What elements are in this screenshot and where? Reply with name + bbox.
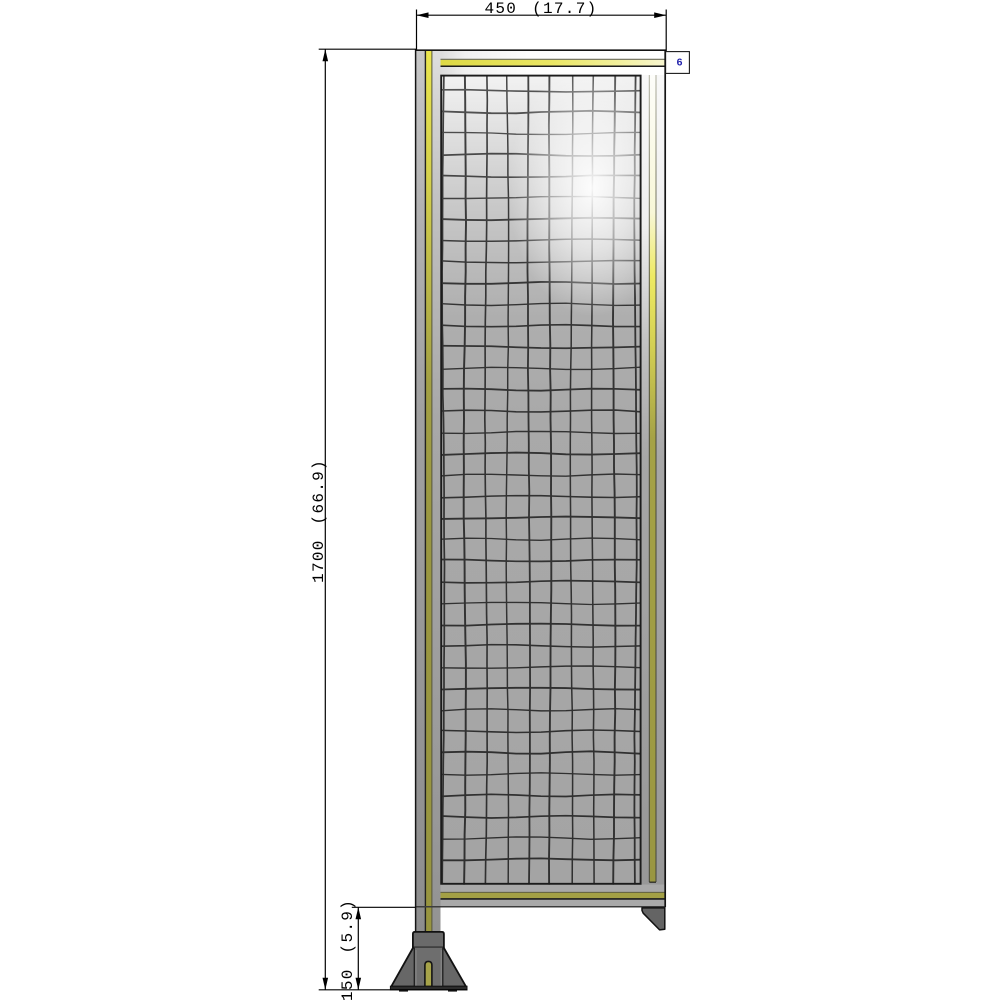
svg-text:1700 (66.9): 1700 (66.9): [310, 459, 328, 583]
svg-text:450 (17.7): 450 (17.7): [484, 0, 597, 18]
svg-text:150 (5.9): 150 (5.9): [339, 899, 357, 1000]
svg-text:6: 6: [677, 56, 683, 68]
